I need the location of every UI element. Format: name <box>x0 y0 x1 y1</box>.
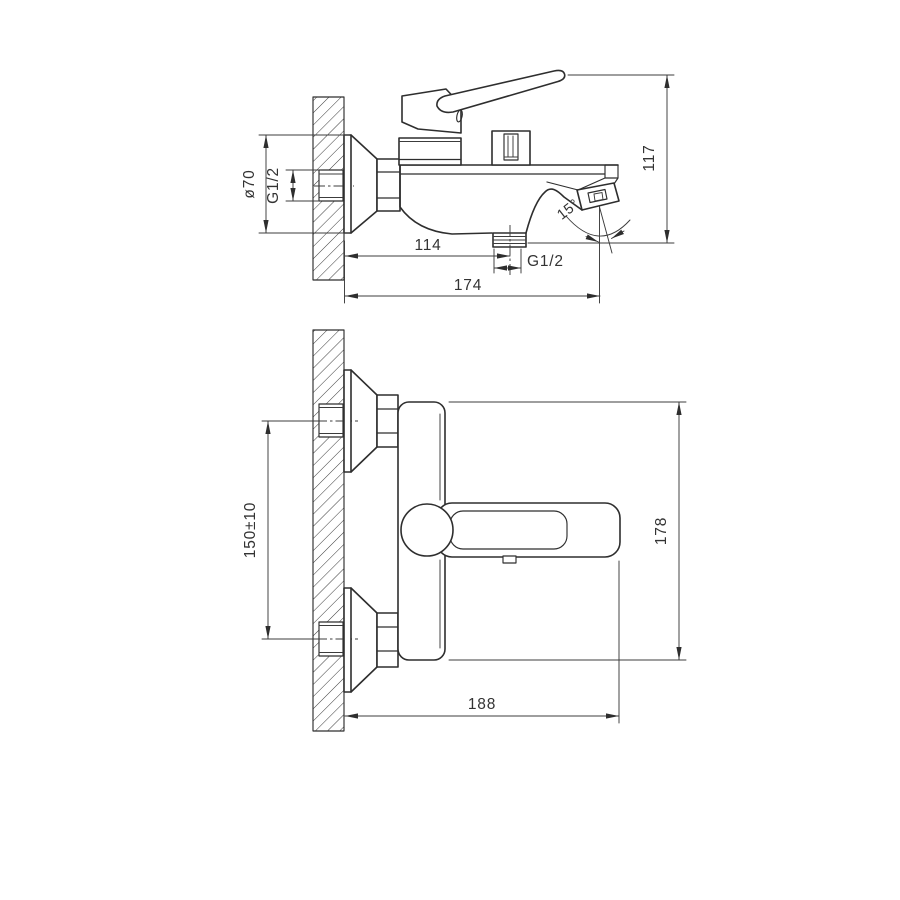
body-underside <box>400 165 492 234</box>
faucet-body-side <box>400 165 618 234</box>
upper-escutcheon-flange <box>344 370 351 472</box>
spout-face <box>578 178 605 190</box>
dim-label-width-174: 174 <box>454 277 482 294</box>
locknut <box>377 159 400 211</box>
dim-angle-15: 15° <box>554 196 630 303</box>
technical-drawing: ø70 G1/2 117 114 G1/2 <box>0 0 900 900</box>
dim-centers-150: 150±10 <box>242 421 268 639</box>
dim-label-height-178: 178 <box>653 517 670 545</box>
drawing-canvas: ø70 G1/2 117 114 G1/2 <box>0 0 900 900</box>
handle-ball-joint <box>401 504 453 556</box>
dim-outlet-thread: G1/2 <box>494 249 564 273</box>
wall-section-front <box>313 330 344 731</box>
dim-label-height-117: 117 <box>641 144 658 171</box>
dim-label-width-188: 188 <box>468 696 496 713</box>
cartridge-base <box>399 138 461 165</box>
diverter-knob <box>492 131 530 165</box>
escutcheon-cone <box>351 135 377 233</box>
dim-label-centers-150: 150±10 <box>242 502 259 558</box>
handle-front <box>401 503 620 563</box>
dim-width-114: 114 <box>345 237 511 303</box>
dim-width-174: 174 <box>345 277 600 296</box>
side-view: ø70 G1/2 117 114 G1/2 <box>241 70 674 303</box>
escutcheon <box>344 135 377 233</box>
dim-label-width-114: 114 <box>414 237 441 254</box>
deck-end-cap <box>605 165 618 178</box>
dim-label-flange-diameter: ø70 <box>241 169 258 198</box>
dim-height-117: 117 <box>528 75 674 243</box>
front-view: 150±10 178 188 <box>242 330 686 731</box>
dim-label-outlet-thread: G1/2 <box>527 253 564 270</box>
wall-hatch <box>313 330 344 731</box>
lower-escutcheon-flange <box>344 588 351 692</box>
diverter-front-detail <box>503 556 516 563</box>
handle-lever <box>437 70 565 112</box>
lower-locknut <box>377 613 398 667</box>
dim-label-inlet-thread: G1/2 <box>265 167 282 204</box>
handle-assembly <box>399 70 565 165</box>
upper-locknut <box>377 395 398 447</box>
upper-escutcheon-cone <box>351 370 377 472</box>
angle-slant-ref <box>600 207 613 253</box>
dim-label-angle-15: 15° <box>554 196 582 223</box>
lower-escutcheon-cone <box>351 588 377 692</box>
